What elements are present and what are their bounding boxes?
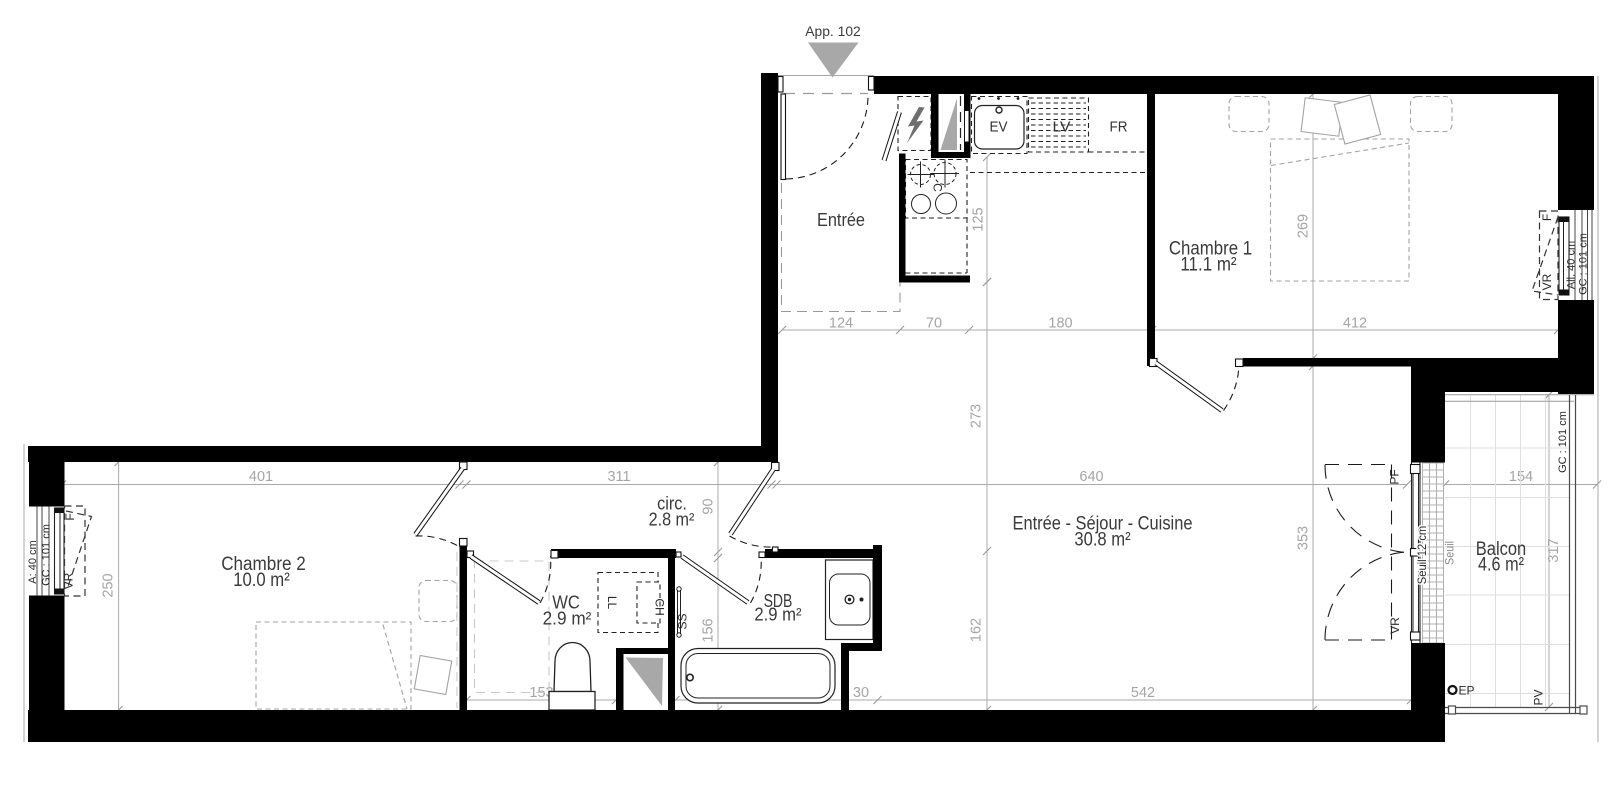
svg-text:401: 401 xyxy=(249,469,273,485)
svg-text:412: 412 xyxy=(1343,316,1367,332)
svg-text:EP: EP xyxy=(1459,684,1475,698)
svg-text:162: 162 xyxy=(969,618,985,642)
svg-text:Seuil 12 cm: Seuil 12 cm xyxy=(1415,526,1429,585)
svg-text:VR: VR xyxy=(62,572,76,589)
svg-text:PF: PF xyxy=(1388,469,1402,484)
svg-text:VR: VR xyxy=(1388,617,1402,634)
svg-text:269: 269 xyxy=(1296,214,1312,238)
svg-text:125: 125 xyxy=(971,207,987,231)
svg-text:GC : 101 cm: GC : 101 cm xyxy=(1578,233,1590,295)
svg-text:A: 40 cm: A: 40 cm xyxy=(27,540,39,583)
svg-text:LV: LV xyxy=(1053,119,1071,136)
svg-text:640: 640 xyxy=(1079,469,1103,485)
svg-text:VR: VR xyxy=(1540,273,1554,290)
svg-text:70: 70 xyxy=(926,316,942,332)
svg-text:11.1 m²: 11.1 m² xyxy=(1180,255,1236,276)
svg-text:SS: SS xyxy=(676,613,690,629)
svg-text:353: 353 xyxy=(1296,526,1312,550)
svg-text:2.9 m²: 2.9 m² xyxy=(754,605,801,625)
svg-text:124: 124 xyxy=(829,316,853,332)
svg-text:10.0 m²: 10.0 m² xyxy=(233,570,290,591)
svg-text:GC : 101 cm: GC : 101 cm xyxy=(41,524,53,586)
svg-text:GC : 101 cm: GC : 101 cm xyxy=(1557,411,1569,473)
svg-text:EV: EV xyxy=(990,119,1008,136)
svg-text:2.9 m²: 2.9 m² xyxy=(543,609,592,629)
svg-text:317: 317 xyxy=(1546,538,1562,562)
svg-text:4.6 m²: 4.6 m² xyxy=(1478,555,1524,576)
svg-text:311: 311 xyxy=(607,469,630,485)
svg-text:542: 542 xyxy=(1131,685,1155,701)
svg-text:LL: LL xyxy=(605,596,619,610)
svg-text:250: 250 xyxy=(101,573,117,597)
svg-text:App. 102: App. 102 xyxy=(805,23,861,39)
svg-text:Seuil: Seuil xyxy=(1443,541,1457,565)
svg-text:FR: FR xyxy=(1110,119,1128,136)
svg-text:Entrée: Entrée xyxy=(817,210,865,230)
svg-text:30: 30 xyxy=(853,685,869,701)
svg-text:180: 180 xyxy=(1048,316,1072,332)
svg-text:90: 90 xyxy=(701,498,717,514)
svg-text:PV: PV xyxy=(1532,689,1546,705)
svg-text:All: 40 cm: All: 40 cm xyxy=(1566,241,1578,289)
svg-text:CH: CH xyxy=(653,598,667,615)
svg-text:F: F xyxy=(63,513,77,520)
svg-text:156: 156 xyxy=(701,618,717,642)
svg-text:C: C xyxy=(931,183,945,192)
svg-text:2.8 m²: 2.8 m² xyxy=(649,510,695,530)
svg-text:30.8 m²: 30.8 m² xyxy=(1074,530,1130,551)
svg-text:273: 273 xyxy=(969,404,985,428)
svg-text:F: F xyxy=(1540,214,1554,221)
